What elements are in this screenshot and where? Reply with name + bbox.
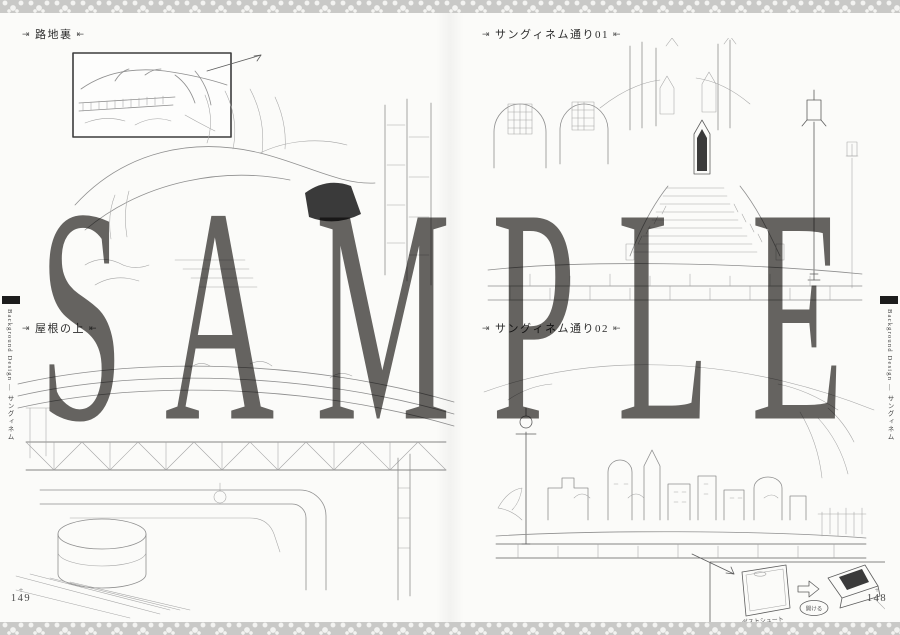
label-alley: ⇥路地裏⇤ xyxy=(18,26,90,42)
rooftop-roof-plane xyxy=(16,574,190,618)
bar-to-arrow-icon: ⇤ xyxy=(609,30,626,40)
bottom-lace-border xyxy=(0,622,900,635)
alley-inset-frame xyxy=(73,53,231,137)
book-spread: ⇥路地裏⇤ ⇥サングィネム通り01⇤ ⇥屋根の上⇤ ⇥サングィネム通り02⇤ xyxy=(0,0,900,635)
label-rooftop: ⇥屋根の上⇤ xyxy=(18,320,102,336)
arrow-to-bar-icon: ⇥ xyxy=(18,30,35,40)
sketch-sanguinem-street-01 xyxy=(480,38,870,310)
rooftop-pipes-top xyxy=(18,361,454,426)
sketch-sanguinem-street-02 xyxy=(478,348,878,573)
street01-staircase xyxy=(626,186,784,260)
label-alley-text: 路地裏 xyxy=(35,29,73,41)
arrow-to-bar-icon: ⇥ xyxy=(478,30,495,40)
left-page-number: + 149 xyxy=(5,588,37,605)
street02-skyline xyxy=(548,450,806,520)
rooftop-tank xyxy=(26,408,146,588)
arrow-to-bar-icon: ⇥ xyxy=(18,324,35,334)
right-page-number: + 148 xyxy=(860,588,894,605)
left-page-number-text: 149 xyxy=(5,593,37,605)
right-side-caption: Background Design ― サングィネム xyxy=(884,309,894,441)
bar-to-arrow-icon: ⇤ xyxy=(73,30,90,40)
right-section-tab xyxy=(880,296,898,304)
arrow-to-bar-icon: ⇥ xyxy=(478,324,495,334)
label-sanguinem-01-text: サングィネム通り01 xyxy=(495,29,609,41)
open-arrow-icon xyxy=(798,581,819,597)
street02-cavern xyxy=(484,365,874,478)
bar-to-arrow-icon: ⇤ xyxy=(85,324,102,334)
street01-arcade xyxy=(494,102,608,168)
left-section-tab xyxy=(2,296,20,304)
street02-lamp-post xyxy=(498,408,536,544)
label-sanguinem-01: ⇥サングィネム通り01⇤ xyxy=(478,26,626,42)
label-sanguinem-02-text: サングィネム通り02 xyxy=(495,323,609,335)
street01-stone-wall xyxy=(488,264,862,300)
bar-to-arrow-icon: ⇤ xyxy=(609,324,626,334)
closed-chute-sketch xyxy=(742,565,790,616)
street01-cathedral xyxy=(600,38,750,174)
left-side-caption: Background Design ― サングィネム xyxy=(4,309,14,441)
dust-chute-diagram: ダストシュート 開ける xyxy=(690,548,885,628)
open-label-bubble: 開ける xyxy=(800,601,828,616)
rooftop-pipework xyxy=(40,454,410,600)
pointer-arrow-icon xyxy=(692,554,734,574)
sketch-back-alley xyxy=(55,45,455,310)
label-sanguinem-02: ⇥サングィネム通り02⇤ xyxy=(478,320,626,336)
right-page-number-text: 148 xyxy=(860,593,894,605)
street01-lamps xyxy=(802,90,858,288)
top-lace-border xyxy=(0,0,900,13)
bubble-text: 開ける xyxy=(806,606,823,613)
label-rooftop-text: 屋根の上 xyxy=(35,323,85,335)
rooftop-truss xyxy=(26,442,446,470)
sketch-rooftop xyxy=(10,338,460,620)
